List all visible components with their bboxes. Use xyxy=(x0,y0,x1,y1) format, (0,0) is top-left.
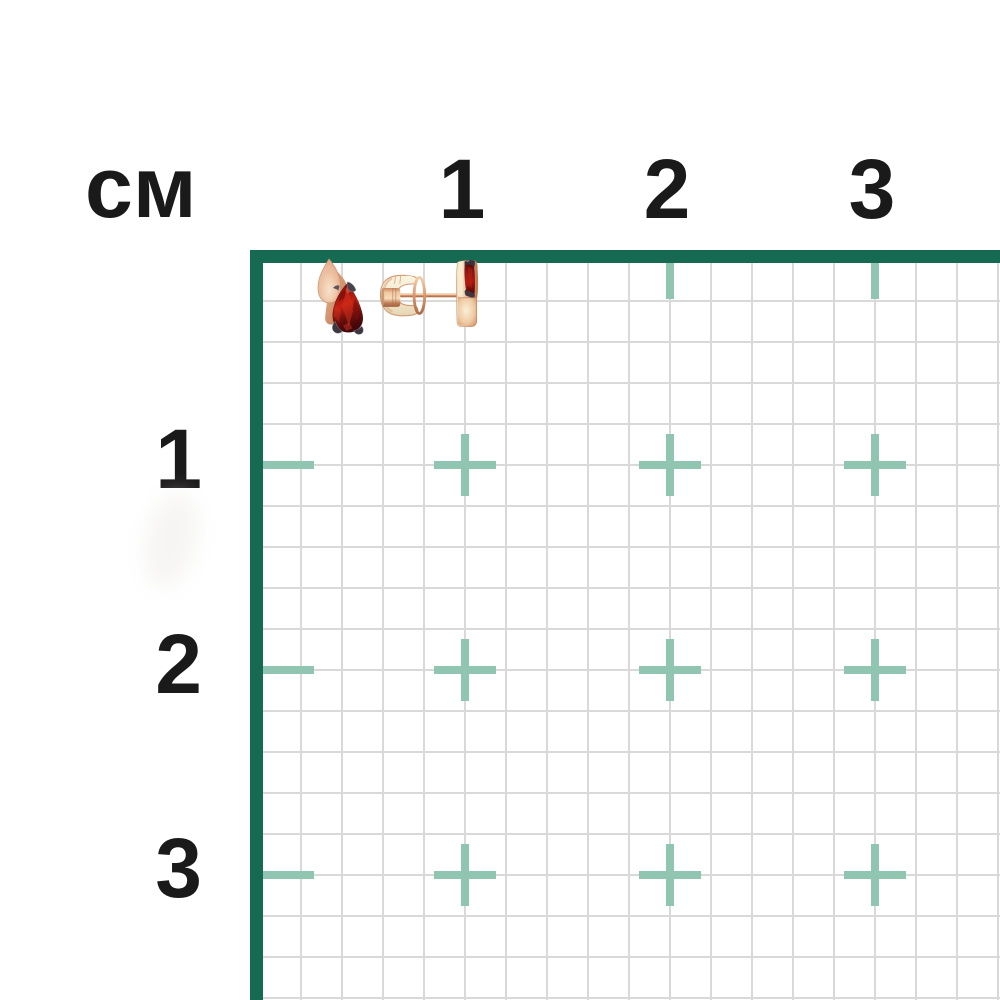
clutch-hub xyxy=(381,288,400,307)
cm-tick-top xyxy=(666,263,674,299)
cm-cross xyxy=(639,871,701,879)
earrings-photo xyxy=(255,255,655,455)
ruler-top-label-3: 3 xyxy=(849,147,896,231)
ruler-top-label-2: 2 xyxy=(644,147,691,231)
earring-side-view xyxy=(380,260,477,327)
cm-cross xyxy=(844,871,906,879)
ruler-left-label-2: 2 xyxy=(82,622,202,706)
cm-cross xyxy=(639,666,701,674)
cm-cross xyxy=(844,666,906,674)
ruler-unit-label: см xyxy=(85,145,196,231)
cm-cross xyxy=(434,461,496,469)
ruler-left-label-1: 1 xyxy=(82,417,202,501)
cm-cross xyxy=(844,461,906,469)
cm-cross xyxy=(434,666,496,674)
earring-post xyxy=(399,293,461,297)
slab-left-highlight xyxy=(458,261,463,296)
size-guide-image: см 1 2 3 1 2 3 xyxy=(0,0,1000,1000)
ruler-left-label-3: 3 xyxy=(82,826,202,910)
garnet-stone-edge xyxy=(464,262,475,293)
earring-front-view xyxy=(318,259,363,334)
cm-cross xyxy=(434,871,496,879)
cm-tick-left xyxy=(263,461,314,469)
ruler-top-label-1: 1 xyxy=(439,147,486,231)
cm-tick-top xyxy=(871,263,879,299)
cm-tick-left xyxy=(263,871,314,879)
slab-gold-base xyxy=(458,298,476,326)
cm-cross xyxy=(639,461,701,469)
cm-tick-left xyxy=(263,666,314,674)
earring-front-edge xyxy=(456,260,477,327)
